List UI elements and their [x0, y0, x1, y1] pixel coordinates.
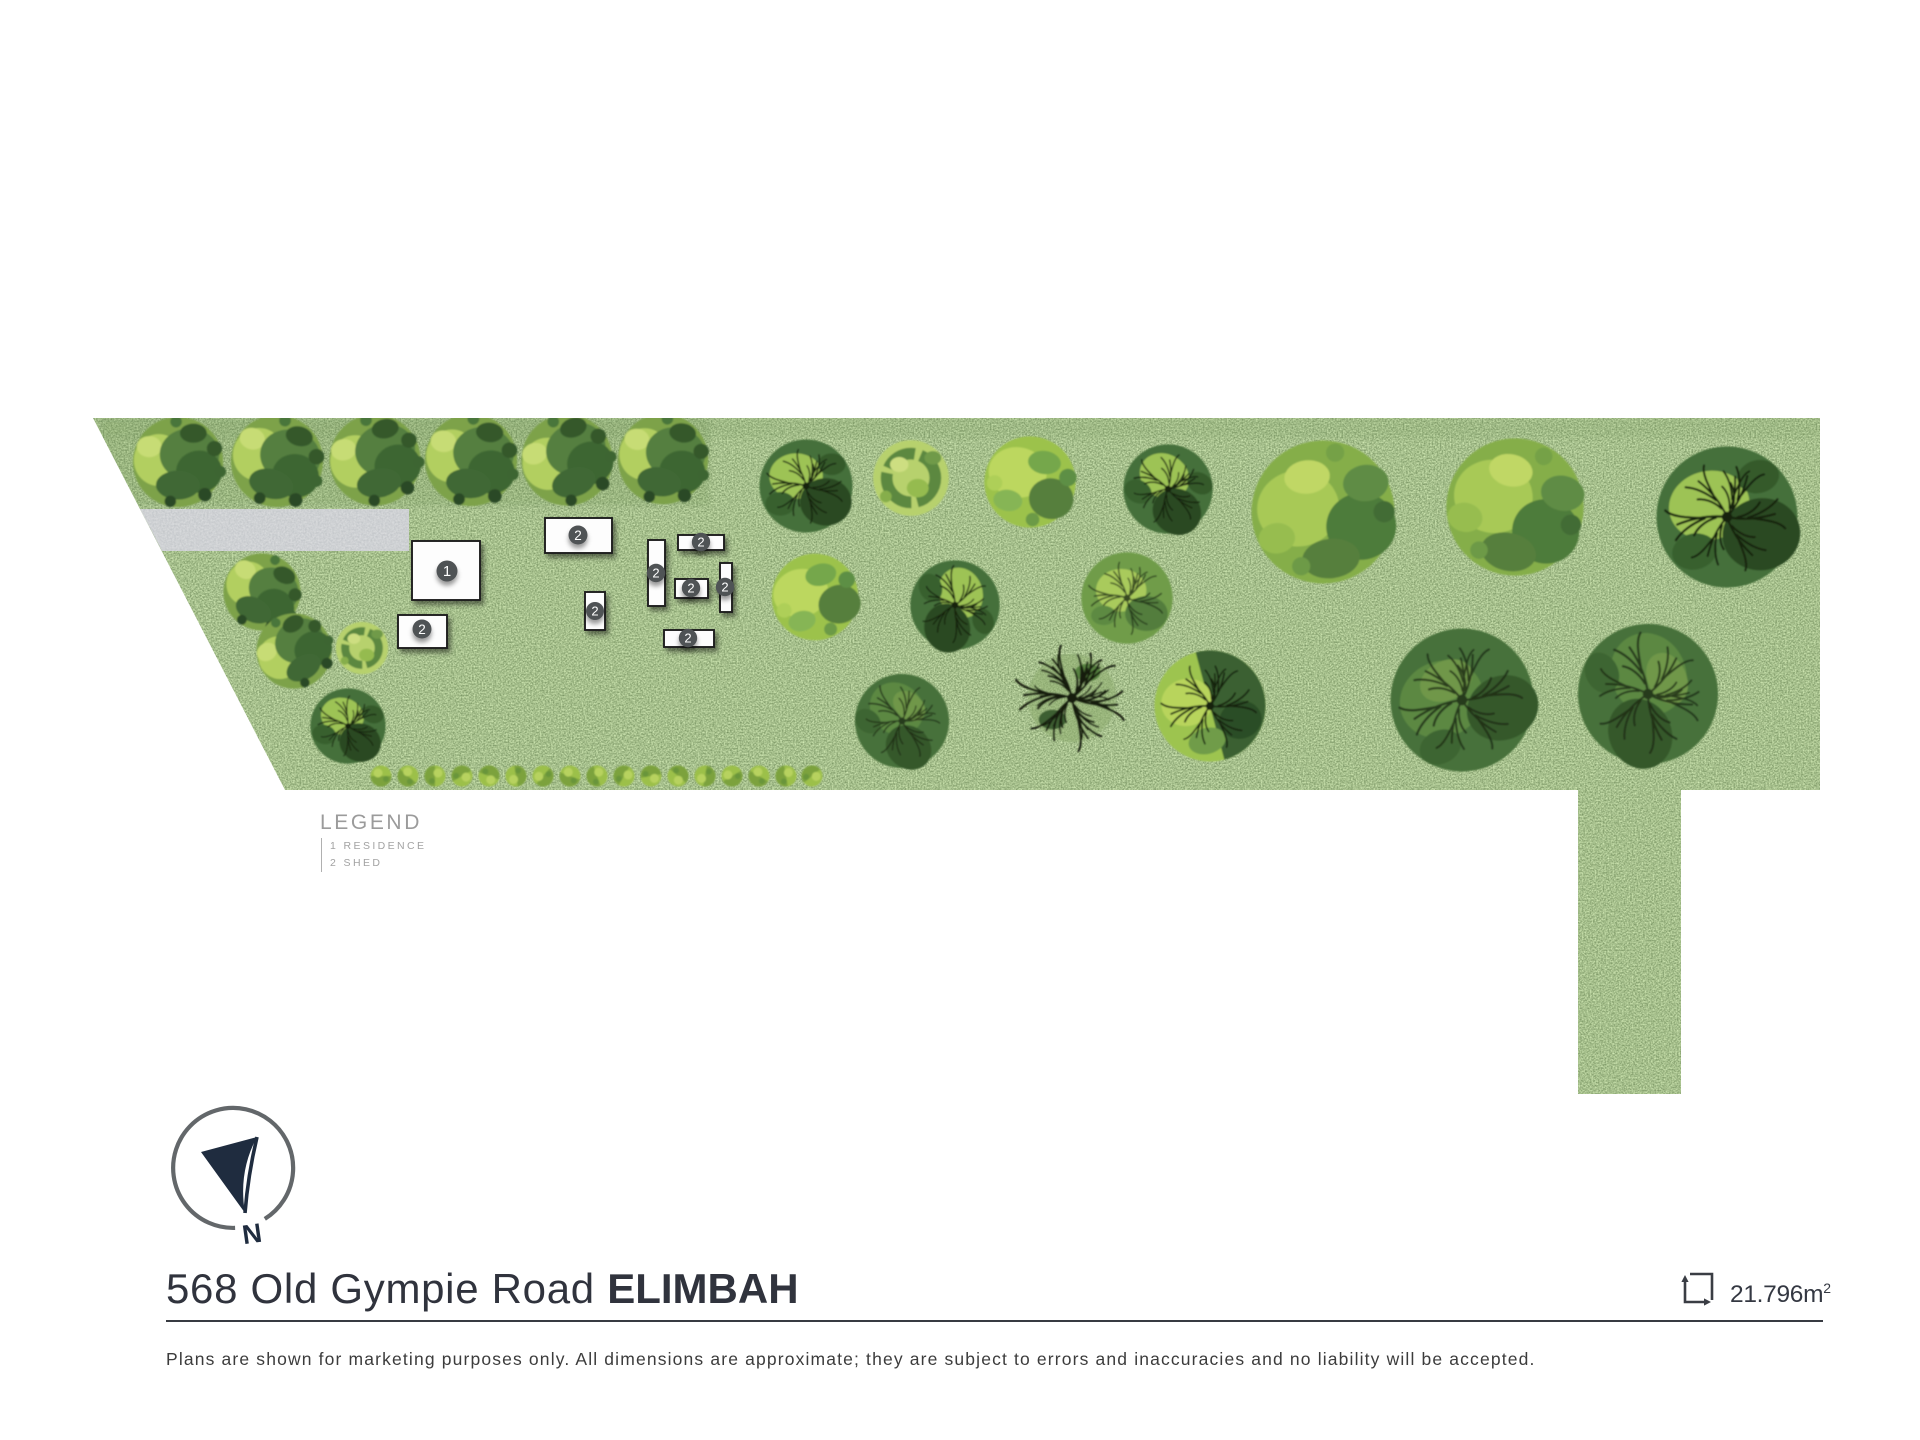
svg-text:2: 2: [591, 604, 598, 619]
svg-text:2: 2: [652, 566, 659, 581]
svg-text:2: 2: [684, 631, 691, 646]
svg-text:2: 2: [418, 622, 426, 637]
svg-text:1: 1: [443, 563, 451, 580]
svg-text:2: 2: [687, 581, 694, 596]
svg-text:2: 2: [574, 528, 582, 543]
svg-text:N: N: [240, 1218, 263, 1250]
svg-text:2: 2: [697, 535, 704, 550]
svg-text:2: 2: [721, 580, 728, 595]
